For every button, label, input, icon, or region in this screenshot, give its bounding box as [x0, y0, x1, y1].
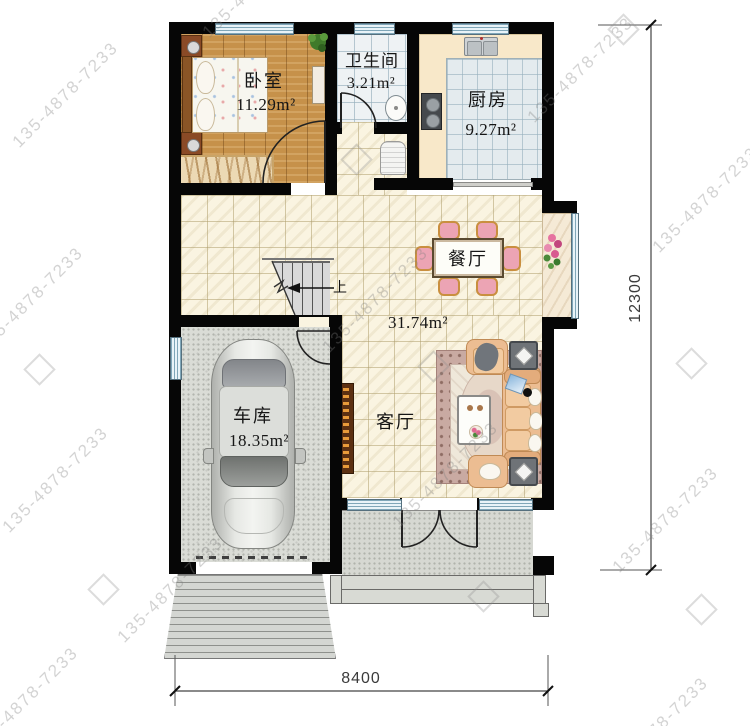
- living-label: 客厅: [376, 408, 416, 434]
- stairs-break-zigzag: [274, 281, 288, 292]
- stairs-up-label: 上: [333, 277, 347, 297]
- bathroom-door-arc: [341, 93, 376, 128]
- kitchen-label: 厨房: [468, 86, 508, 112]
- dim-height-label: 12300: [627, 273, 644, 323]
- plan-linework: 8400 12300: [0, 0, 750, 726]
- bay-flowers-icon: [544, 234, 563, 269]
- bedroom-label: 卧室: [244, 67, 284, 93]
- kitchen-area-label: 9.27m²: [465, 120, 516, 140]
- bathroom-label: 卫生间: [345, 47, 399, 72]
- garage-area-label: 18.35m²: [229, 431, 289, 451]
- dim-width-label: 8400: [341, 670, 381, 687]
- bedroom-door-arc: [263, 121, 325, 183]
- dining-label: 餐厅: [448, 245, 488, 271]
- hall-area-label: 31.74m²: [388, 313, 448, 333]
- entry-door-arc: [440, 510, 477, 547]
- floor-plan-canvas: 8400 12300 卧室 11.29m² 卫生间 3.21m² 厨房 9.27…: [0, 0, 750, 726]
- bedroom-area-label: 11.29m²: [236, 95, 295, 115]
- garage-label: 车库: [233, 402, 273, 428]
- garage-door-arc: [297, 331, 330, 364]
- plant-icon: [308, 33, 328, 52]
- bathroom-area-label: 3.21m²: [347, 75, 395, 93]
- entry-door-arc: [402, 510, 439, 547]
- stairs-arrow-head: [287, 283, 300, 293]
